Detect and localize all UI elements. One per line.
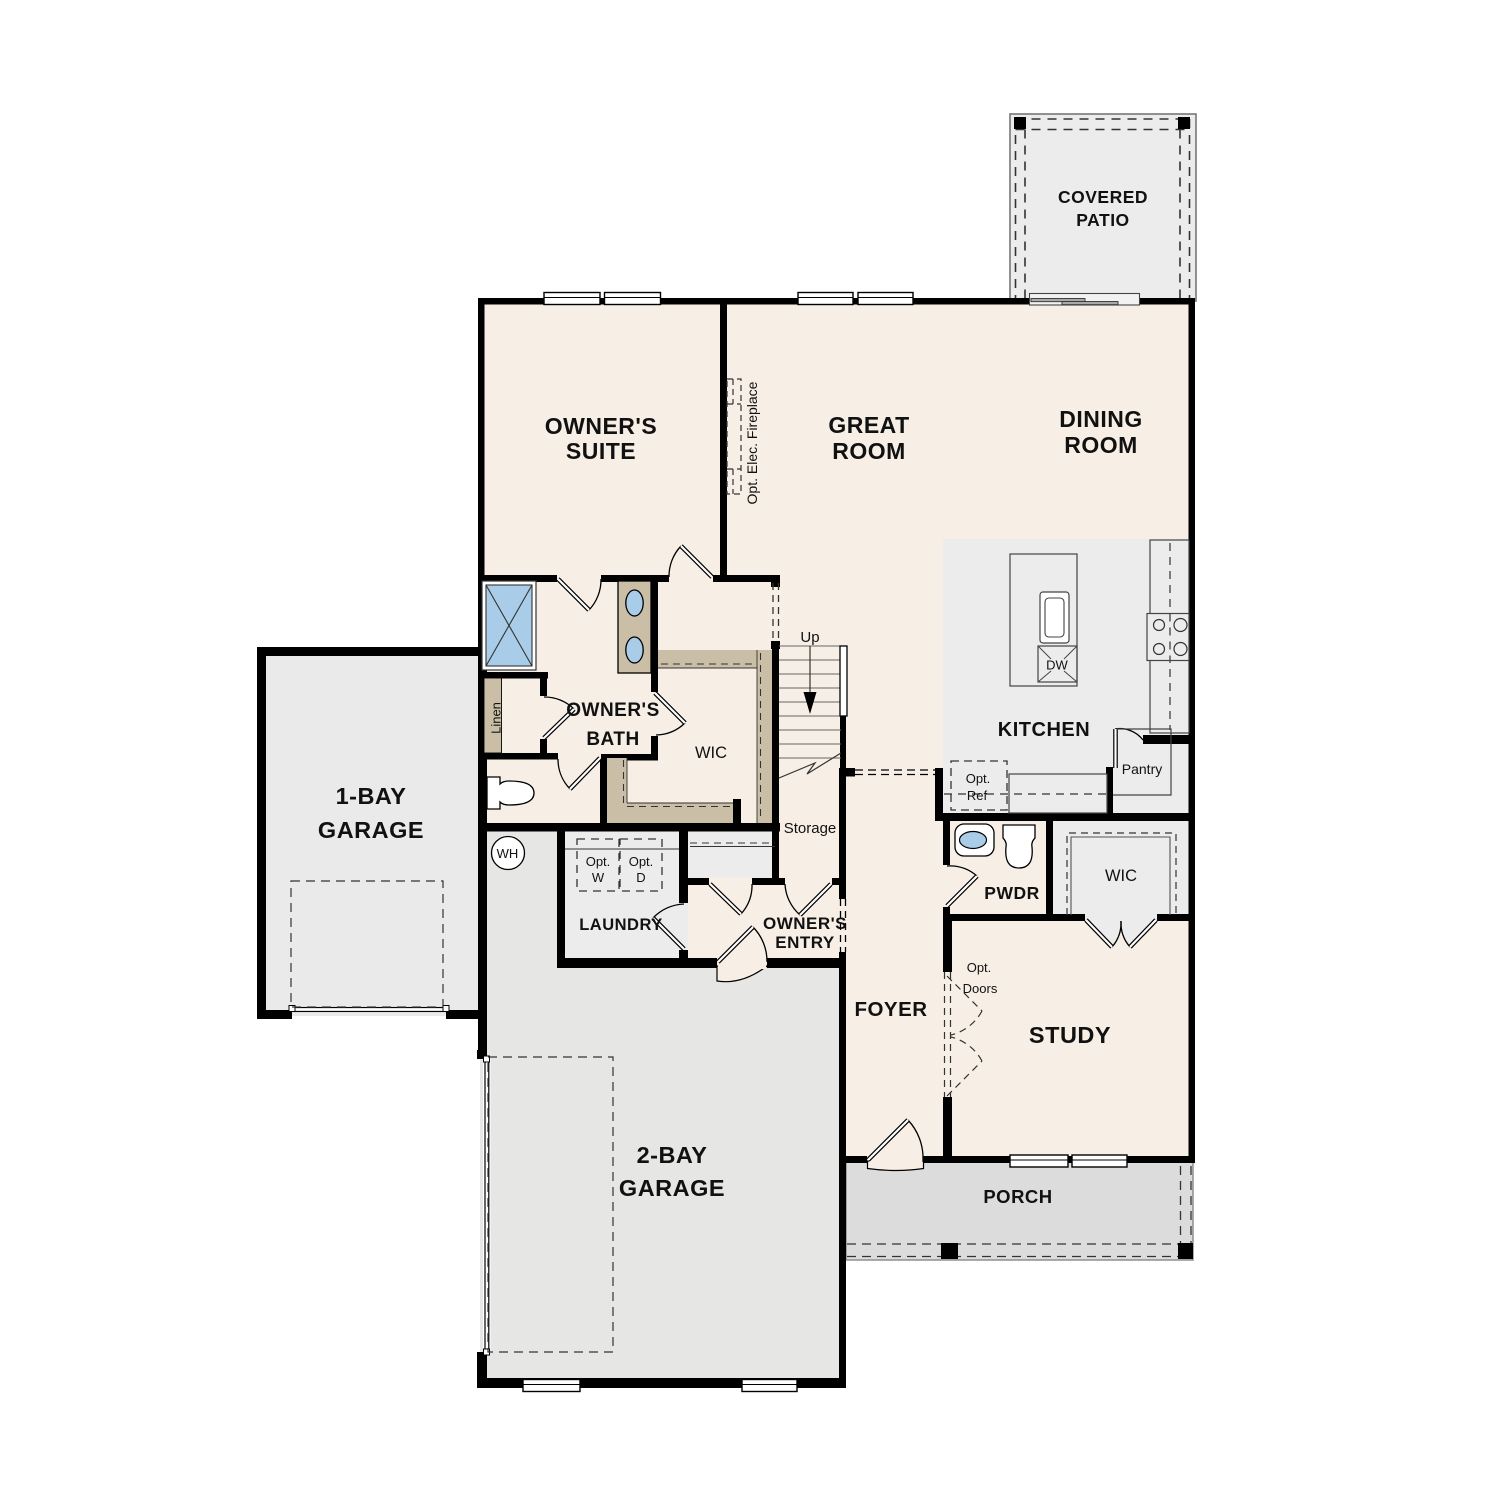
- svg-text:GREAT: GREAT: [828, 412, 909, 438]
- svg-text:WIC: WIC: [1105, 867, 1137, 885]
- svg-text:LAUNDRY: LAUNDRY: [579, 916, 663, 934]
- svg-text:OWNER'S: OWNER'S: [763, 914, 847, 933]
- svg-text:FOYER: FOYER: [854, 998, 927, 1021]
- svg-text:WH: WH: [497, 846, 519, 861]
- svg-text:Storage: Storage: [784, 820, 837, 837]
- svg-text:D: D: [636, 870, 645, 885]
- svg-text:BATH: BATH: [586, 729, 639, 750]
- svg-text:WIC: WIC: [695, 744, 727, 762]
- svg-text:PWDR: PWDR: [984, 883, 1039, 903]
- svg-text:Opt.: Opt.: [629, 854, 654, 869]
- svg-text:1-BAY: 1-BAY: [336, 783, 407, 809]
- svg-text:DW: DW: [1046, 658, 1068, 673]
- svg-text:STUDY: STUDY: [1029, 1022, 1111, 1048]
- svg-text:Ref: Ref: [967, 788, 988, 803]
- svg-text:Opt. Elec. Fireplace: Opt. Elec. Fireplace: [744, 381, 760, 504]
- svg-text:Opt.: Opt.: [586, 854, 611, 869]
- svg-text:OWNER'S: OWNER'S: [566, 700, 660, 721]
- svg-text:GARAGE: GARAGE: [318, 817, 424, 843]
- svg-text:Opt.: Opt.: [967, 960, 992, 975]
- svg-text:DINING: DINING: [1059, 406, 1143, 432]
- svg-text:2-BAY: 2-BAY: [637, 1142, 708, 1168]
- svg-text:COVERED: COVERED: [1058, 187, 1148, 207]
- svg-text:PORCH: PORCH: [983, 1186, 1052, 1207]
- svg-text:SUITE: SUITE: [566, 438, 636, 464]
- svg-text:ROOM: ROOM: [1064, 432, 1138, 458]
- svg-text:Pantry: Pantry: [1122, 761, 1162, 777]
- svg-text:Linen: Linen: [489, 702, 504, 734]
- svg-text:W: W: [592, 870, 605, 885]
- svg-text:KITCHEN: KITCHEN: [998, 719, 1090, 741]
- svg-text:PATIO: PATIO: [1076, 210, 1129, 230]
- svg-text:Opt.: Opt.: [966, 771, 991, 786]
- svg-text:OWNER'S: OWNER'S: [545, 413, 657, 439]
- svg-text:Up: Up: [800, 629, 819, 646]
- svg-text:ROOM: ROOM: [832, 438, 906, 464]
- svg-text:Doors: Doors: [963, 981, 998, 996]
- svg-text:GARAGE: GARAGE: [619, 1175, 725, 1201]
- svg-text:ENTRY: ENTRY: [775, 933, 835, 952]
